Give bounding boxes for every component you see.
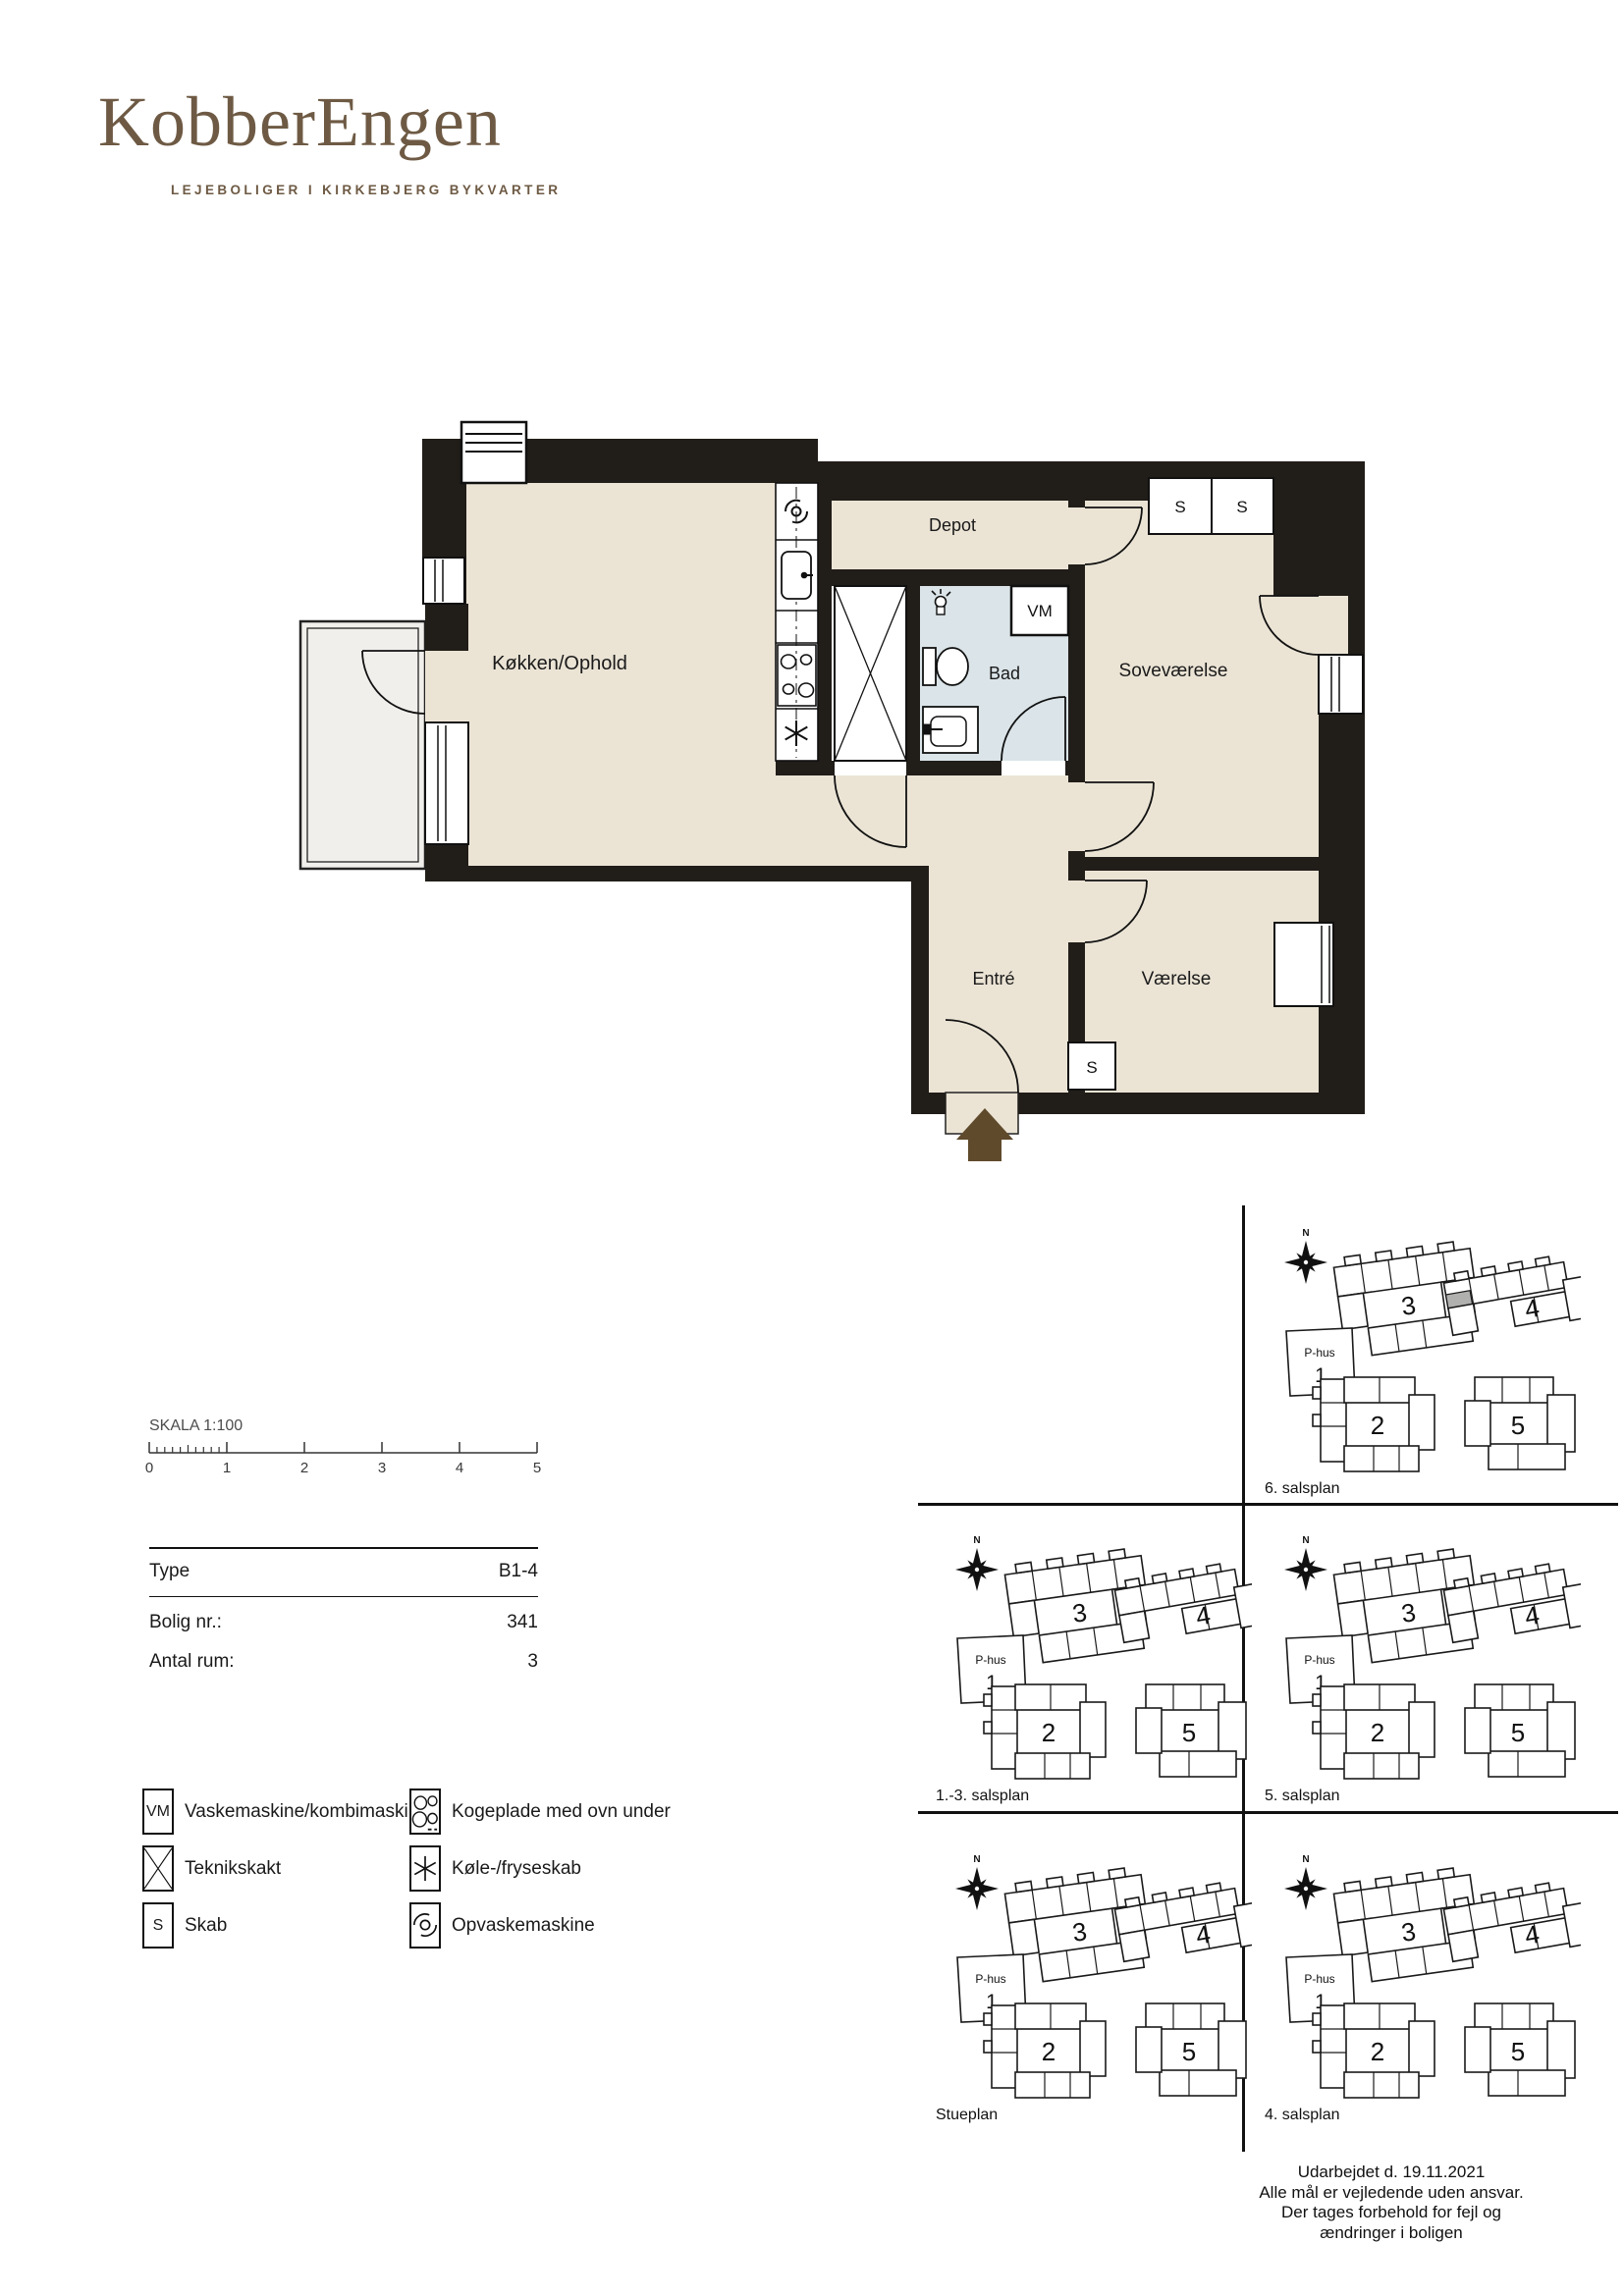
fridge-freezer-icon: [409, 1845, 441, 1892]
dishwasher-icon: [409, 1902, 441, 1949]
info-label: Bolig nr.:: [149, 1612, 222, 1633]
toilet-icon: [923, 648, 968, 685]
svg-text:5: 5: [1182, 1718, 1196, 1747]
svg-text:5: 5: [1511, 1411, 1525, 1440]
kitchen-living-label: Køkken/Ophold: [492, 653, 627, 674]
info-row: Bolig nr.: 341: [149, 1603, 538, 1642]
sink-icon: [782, 552, 813, 599]
window-left-lower: [425, 722, 468, 844]
entry-label: Entré: [972, 969, 1014, 988]
panel-label: 1.-3. salsplan: [936, 1788, 1029, 1804]
cabinet-symbol: S: [142, 1902, 174, 1949]
compass-icon: N: [955, 1535, 999, 1591]
ruler-tick-label: 4: [456, 1460, 463, 1476]
svg-text:2: 2: [1371, 1718, 1384, 1747]
info-table: Type B1-4 Bolig nr.: 341 Antal rum: 3: [149, 1547, 538, 1682]
building-5: 5: [1465, 1684, 1575, 1777]
ruler-tick-label: 1: [223, 1460, 231, 1476]
svg-text:2: 2: [1042, 2037, 1056, 2066]
floorplan-sheet: KobberEngen LEJEBOLIGER I KIRKEBJERG BYK…: [0, 0, 1624, 2296]
window-left-upper: [423, 558, 464, 604]
svg-text:P-hus: P-hus: [1304, 1972, 1334, 1986]
panel-label: Stueplan: [936, 2107, 998, 2123]
building-2: 2: [984, 2003, 1106, 2098]
info-label: Type: [149, 1561, 189, 1582]
bedroom-label: Soveværelse: [1119, 661, 1228, 681]
compass-icon: N: [955, 1854, 999, 1910]
washbasin-icon: [923, 707, 978, 753]
info-label: Antal rum:: [149, 1651, 235, 1673]
svg-text:S: S: [1236, 498, 1247, 516]
svg-text:2: 2: [1042, 1718, 1056, 1747]
compass-icon: N: [1284, 1535, 1327, 1591]
svg-text:3: 3: [1070, 1597, 1089, 1629]
compass-icon: N: [1284, 1854, 1327, 1910]
svg-text:3: 3: [1399, 1916, 1418, 1948]
building-2: 2: [1313, 2003, 1435, 2098]
svg-text:N: N: [1302, 1228, 1309, 1239]
building-5: 5: [1136, 1684, 1246, 1777]
svg-text:5: 5: [1511, 1718, 1525, 1747]
room-label: Værelse: [1142, 969, 1212, 989]
info-value: 3: [527, 1651, 538, 1673]
building-5: 5: [1136, 2003, 1246, 2096]
site-plan-panel: N 3: [928, 1842, 1252, 2131]
site-plan-panel: N 3: [1257, 1842, 1581, 2131]
svg-text:2: 2: [1371, 2037, 1384, 2066]
svg-text:S: S: [1174, 498, 1185, 516]
ruler-tick-label: 2: [300, 1460, 308, 1476]
info-row: Antal rum: 3: [149, 1642, 538, 1682]
compass-icon: N: [1284, 1228, 1327, 1284]
legend-item: Kogeplade med ovn under: [409, 1789, 671, 1835]
scale-ruler: 012345: [145, 1439, 548, 1486]
technical-shaft: [835, 586, 906, 761]
svg-text:P-hus: P-hus: [975, 1653, 1005, 1667]
svg-text:3: 3: [1070, 1916, 1089, 1948]
ruler-tick-label: 0: [145, 1460, 153, 1476]
bath-label: Bad: [989, 664, 1020, 683]
brand-header: KobberEngen LEJEBOLIGER I KIRKEBJERG BYK…: [98, 86, 561, 197]
site-plan-panel: N 3: [1257, 1522, 1581, 1812]
building-5: 5: [1465, 1377, 1575, 1469]
brand-logo: KobberEngen: [98, 86, 561, 157]
info-value: 341: [507, 1612, 538, 1633]
legend-item: Opvaskemaskine: [409, 1902, 671, 1949]
site-plan-panel: N 3: [928, 1522, 1252, 1812]
cooktop-icon: [409, 1789, 441, 1835]
svg-text:5: 5: [1511, 2037, 1525, 2066]
panel-label: 6. salsplan: [1265, 1480, 1340, 1497]
svg-text:5: 5: [1182, 2037, 1196, 2066]
legend-item: S Skab: [142, 1902, 429, 1949]
info-row: Type B1-4: [149, 1547, 538, 1597]
svg-text:S: S: [1086, 1058, 1097, 1077]
site-plan-panel: N 3: [1257, 1215, 1581, 1505]
svg-text:P-hus: P-hus: [1304, 1653, 1334, 1667]
svg-text:3: 3: [1399, 1290, 1418, 1321]
svg-text:VM: VM: [1027, 602, 1053, 620]
svg-text:N: N: [973, 1535, 980, 1546]
building-2: 2: [1313, 1684, 1435, 1779]
building-2: 2: [1313, 1377, 1435, 1471]
svg-text:2: 2: [1371, 1411, 1384, 1440]
legend-item: Køle-/fryseskab: [409, 1845, 671, 1892]
kitchen-counter: [776, 483, 818, 761]
washing-machine-symbol: VM: [142, 1789, 174, 1835]
ruler-tick-label: 5: [533, 1460, 541, 1476]
legend-item: Teknikskakt: [142, 1845, 429, 1892]
panel-label: 4. salsplan: [1265, 2107, 1340, 2123]
svg-text:3: 3: [1399, 1597, 1418, 1629]
depot-label: Depot: [929, 515, 976, 535]
svg-text:N: N: [973, 1854, 980, 1865]
scale-label: SKALA 1:100: [149, 1417, 243, 1435]
panel-label: 5. salsplan: [1265, 1788, 1340, 1804]
building-2: 2: [984, 1684, 1106, 1779]
brand-tagline: LEJEBOLIGER I KIRKEBJERG BYKVARTER: [171, 183, 561, 197]
washing-machine-box: VM: [1011, 586, 1068, 635]
vent-block: [461, 422, 526, 483]
footer-disclaimer: Udarbejdet d. 19.11.2021 Alle mål er vej…: [1215, 2163, 1568, 2243]
svg-text:N: N: [1302, 1854, 1309, 1865]
floor-plan: VM S S S Køkken/Ophold Depot Bad: [265, 402, 1365, 1178]
info-value: B1-4: [499, 1561, 538, 1582]
svg-text:P-hus: P-hus: [1304, 1346, 1334, 1360]
window-bedroom: [1319, 655, 1363, 714]
building-5: 5: [1465, 2003, 1575, 2096]
svg-text:N: N: [1302, 1535, 1309, 1546]
svg-text:P-hus: P-hus: [975, 1972, 1005, 1986]
window-room: [1274, 923, 1333, 1006]
ruler-tick-label: 3: [378, 1460, 386, 1476]
legend-item: VM Vaskemaskine/kombimaskine: [142, 1789, 429, 1835]
technical-shaft-symbol: [142, 1845, 174, 1892]
